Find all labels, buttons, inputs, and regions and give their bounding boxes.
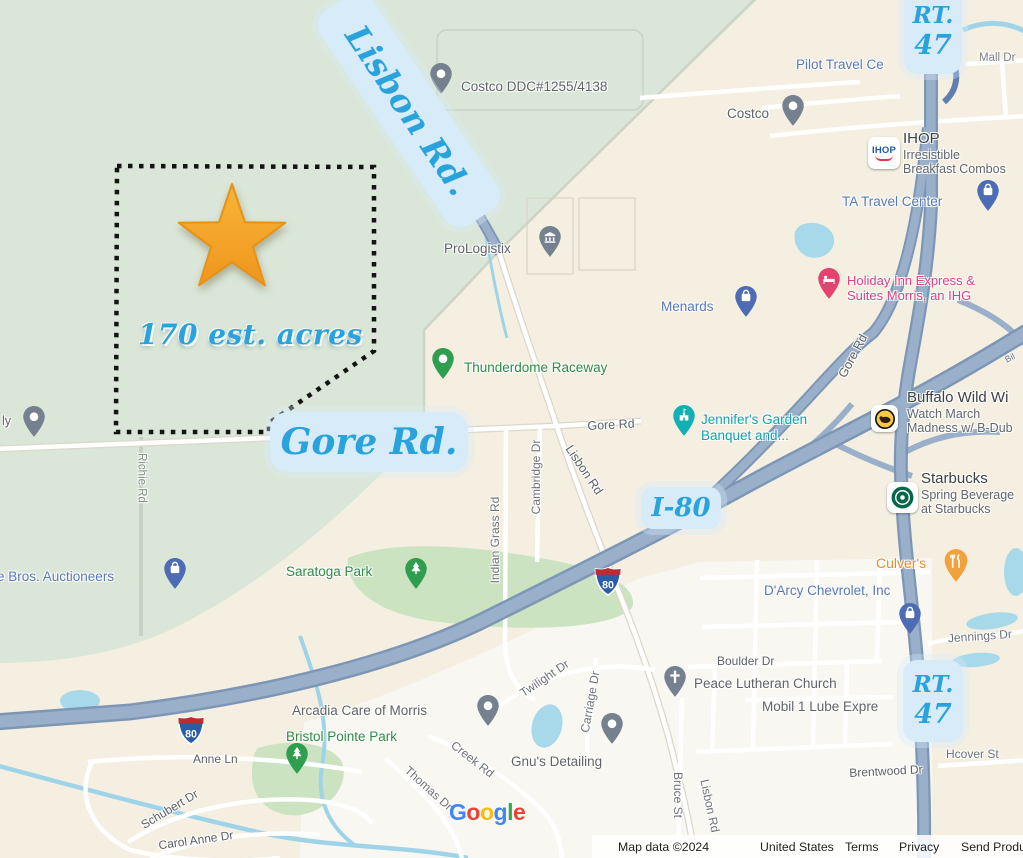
ta-travel-center-pin[interactable] bbox=[976, 179, 1001, 217]
attribution-country: United States bbox=[760, 840, 834, 854]
star-marker bbox=[172, 180, 292, 300]
road-mall-dr: Mall Dr bbox=[979, 52, 1015, 65]
partial-poi-pin[interactable] bbox=[22, 405, 47, 443]
rt47-top-line1: RT. bbox=[913, 3, 954, 29]
google-letter: e bbox=[513, 799, 525, 825]
ritchie-bros-pin[interactable] bbox=[163, 557, 188, 595]
prologistix-pin[interactable] bbox=[538, 225, 563, 263]
poi-starbucks-sub1: Spring Beverage bbox=[921, 488, 1014, 502]
costco-pin[interactable] bbox=[781, 94, 806, 132]
gnus-detailing-pin[interactable] bbox=[600, 712, 625, 750]
map-container: Lisbon Rd. Gore Rd. I-80 RT. 47 RT. 47 1… bbox=[0, 0, 1023, 858]
poi-buffalo-sub2: Madness w/ B-Dub bbox=[907, 421, 1013, 435]
svg-text:80: 80 bbox=[185, 728, 197, 740]
acreage-annotation: 170 est. acres bbox=[138, 318, 363, 351]
gore-rd-annotation: Gore Rd. bbox=[270, 412, 468, 472]
privacy-link[interactable]: Privacy bbox=[899, 840, 939, 854]
poi-culvers[interactable]: Culver's bbox=[876, 555, 926, 571]
google-letter: G bbox=[449, 799, 466, 825]
road-hcover: Hcover St bbox=[946, 748, 999, 762]
starbucks-siren-icon bbox=[890, 485, 915, 510]
buffalo-wild-wings-logo[interactable] bbox=[871, 405, 898, 432]
poi-pilot-travel[interactable]: Pilot Travel Ce bbox=[796, 57, 884, 73]
poi-costco-ddc[interactable]: Costco DDC#1255/4138 bbox=[461, 79, 607, 95]
road-cambridge: Cambridge Dr bbox=[530, 440, 544, 515]
poi-mobil-lube[interactable]: Mobil 1 Lube Expre bbox=[762, 699, 878, 715]
starbucks-logo[interactable] bbox=[887, 482, 918, 513]
poi-holiday-inn-line1: Holiday Inn Express & bbox=[847, 274, 975, 289]
poi-thunderdome[interactable]: Thunderdome Raceway bbox=[464, 360, 607, 376]
google-letter: o bbox=[480, 799, 494, 825]
buffalo-icon bbox=[874, 408, 896, 430]
poi-costco[interactable]: Costco bbox=[727, 106, 769, 122]
map-data-copyright: Map data ©2024 bbox=[618, 840, 709, 854]
map-canvas bbox=[0, 0, 1023, 858]
poi-darcy-chevrolet[interactable]: D'Arcy Chevrolet, Inc bbox=[764, 583, 890, 599]
rt47-annotation-top: RT. 47 bbox=[904, 0, 962, 74]
poi-jennifers-garden[interactable]: Jennifer's Garden Banquet and... bbox=[701, 412, 807, 443]
road-indian-grass: Indian Grass Rd bbox=[489, 497, 503, 584]
poi-prologistix[interactable]: ProLogistix bbox=[444, 241, 511, 257]
peace-lutheran-pin[interactable] bbox=[663, 665, 688, 703]
google-logo[interactable]: Google bbox=[449, 799, 525, 826]
rt47-bottom-line1: RT. bbox=[913, 672, 954, 698]
rt47-bottom-line2: 47 bbox=[914, 699, 952, 730]
poi-jennifers-line1: Jennifer's Garden bbox=[701, 412, 807, 428]
i80-shield: 80 bbox=[176, 715, 206, 746]
road-gore-rd: Gore Rd bbox=[587, 417, 635, 434]
google-letter: o bbox=[466, 799, 480, 825]
darcy-chevrolet-pin[interactable] bbox=[898, 602, 923, 640]
poi-ihop-sub1: Irresistible bbox=[903, 148, 960, 162]
poi-starbucks-sub2: at Starbucks bbox=[921, 502, 990, 516]
road-anne-ln: Anne Ln bbox=[193, 753, 238, 767]
i80-shield: 80 bbox=[593, 566, 623, 597]
road-richie-rd: Richie Rd bbox=[134, 453, 147, 503]
poi-peace-lutheran[interactable]: Peace Lutheran Church bbox=[694, 676, 837, 692]
arcadia-pin[interactable] bbox=[476, 694, 501, 732]
poi-saratoga-park[interactable]: Saratoga Park bbox=[286, 564, 372, 580]
poi-ta-travel-center[interactable]: TA Travel Center bbox=[842, 194, 942, 210]
holiday-inn-pin[interactable] bbox=[817, 267, 842, 305]
poi-arcadia-care[interactable]: Arcadia Care of Morris bbox=[292, 703, 427, 719]
poi-holiday-inn-line2: Suites Morris, an IHG bbox=[847, 289, 975, 304]
culvers-pin[interactable] bbox=[943, 548, 970, 588]
send-feedback-link[interactable]: Send Produ bbox=[961, 840, 1023, 854]
poi-starbucks-title[interactable]: Starbucks bbox=[921, 470, 988, 487]
terms-link[interactable]: Terms bbox=[845, 840, 878, 854]
rt47-top-line2: 47 bbox=[914, 30, 952, 61]
road-bruce: Bruce St bbox=[670, 772, 684, 818]
poi-buffalo-title[interactable]: Buffalo Wild Wi bbox=[907, 389, 1008, 406]
poi-ritchie-bros[interactable]: ie Bros. Auctioneers bbox=[0, 569, 114, 585]
menards-pin[interactable] bbox=[734, 285, 759, 323]
poi-partial-ly[interactable]: ly bbox=[2, 414, 11, 428]
poi-ihop-title[interactable]: IHOP bbox=[903, 130, 940, 147]
ihop-smile-icon bbox=[875, 155, 893, 161]
saratoga-park-pin[interactable] bbox=[404, 557, 429, 595]
poi-jennifers-line2: Banquet and... bbox=[701, 428, 807, 444]
google-letter: g bbox=[494, 799, 508, 825]
poi-holiday-inn[interactable]: Holiday Inn Express & Suites Morris, an … bbox=[847, 274, 975, 304]
thunderdome-pin[interactable] bbox=[431, 347, 456, 385]
svg-text:80: 80 bbox=[602, 579, 614, 591]
poi-ihop-sub2: Breakfast Combos bbox=[903, 162, 1006, 176]
rt47-annotation-bottom: RT. 47 bbox=[903, 660, 963, 742]
bristol-pointe-pin[interactable] bbox=[285, 742, 310, 780]
jennifers-garden-pin[interactable] bbox=[672, 404, 697, 442]
poi-menards[interactable]: Menards bbox=[661, 299, 714, 315]
road-boulder: Boulder Dr bbox=[717, 655, 774, 669]
ihop-logo[interactable]: IHOP bbox=[868, 137, 900, 169]
i80-annotation: I-80 bbox=[641, 487, 721, 529]
poi-buffalo-sub1: Watch March bbox=[907, 407, 980, 421]
poi-gnus-detailing[interactable]: Gnu's Detailing bbox=[511, 754, 602, 770]
